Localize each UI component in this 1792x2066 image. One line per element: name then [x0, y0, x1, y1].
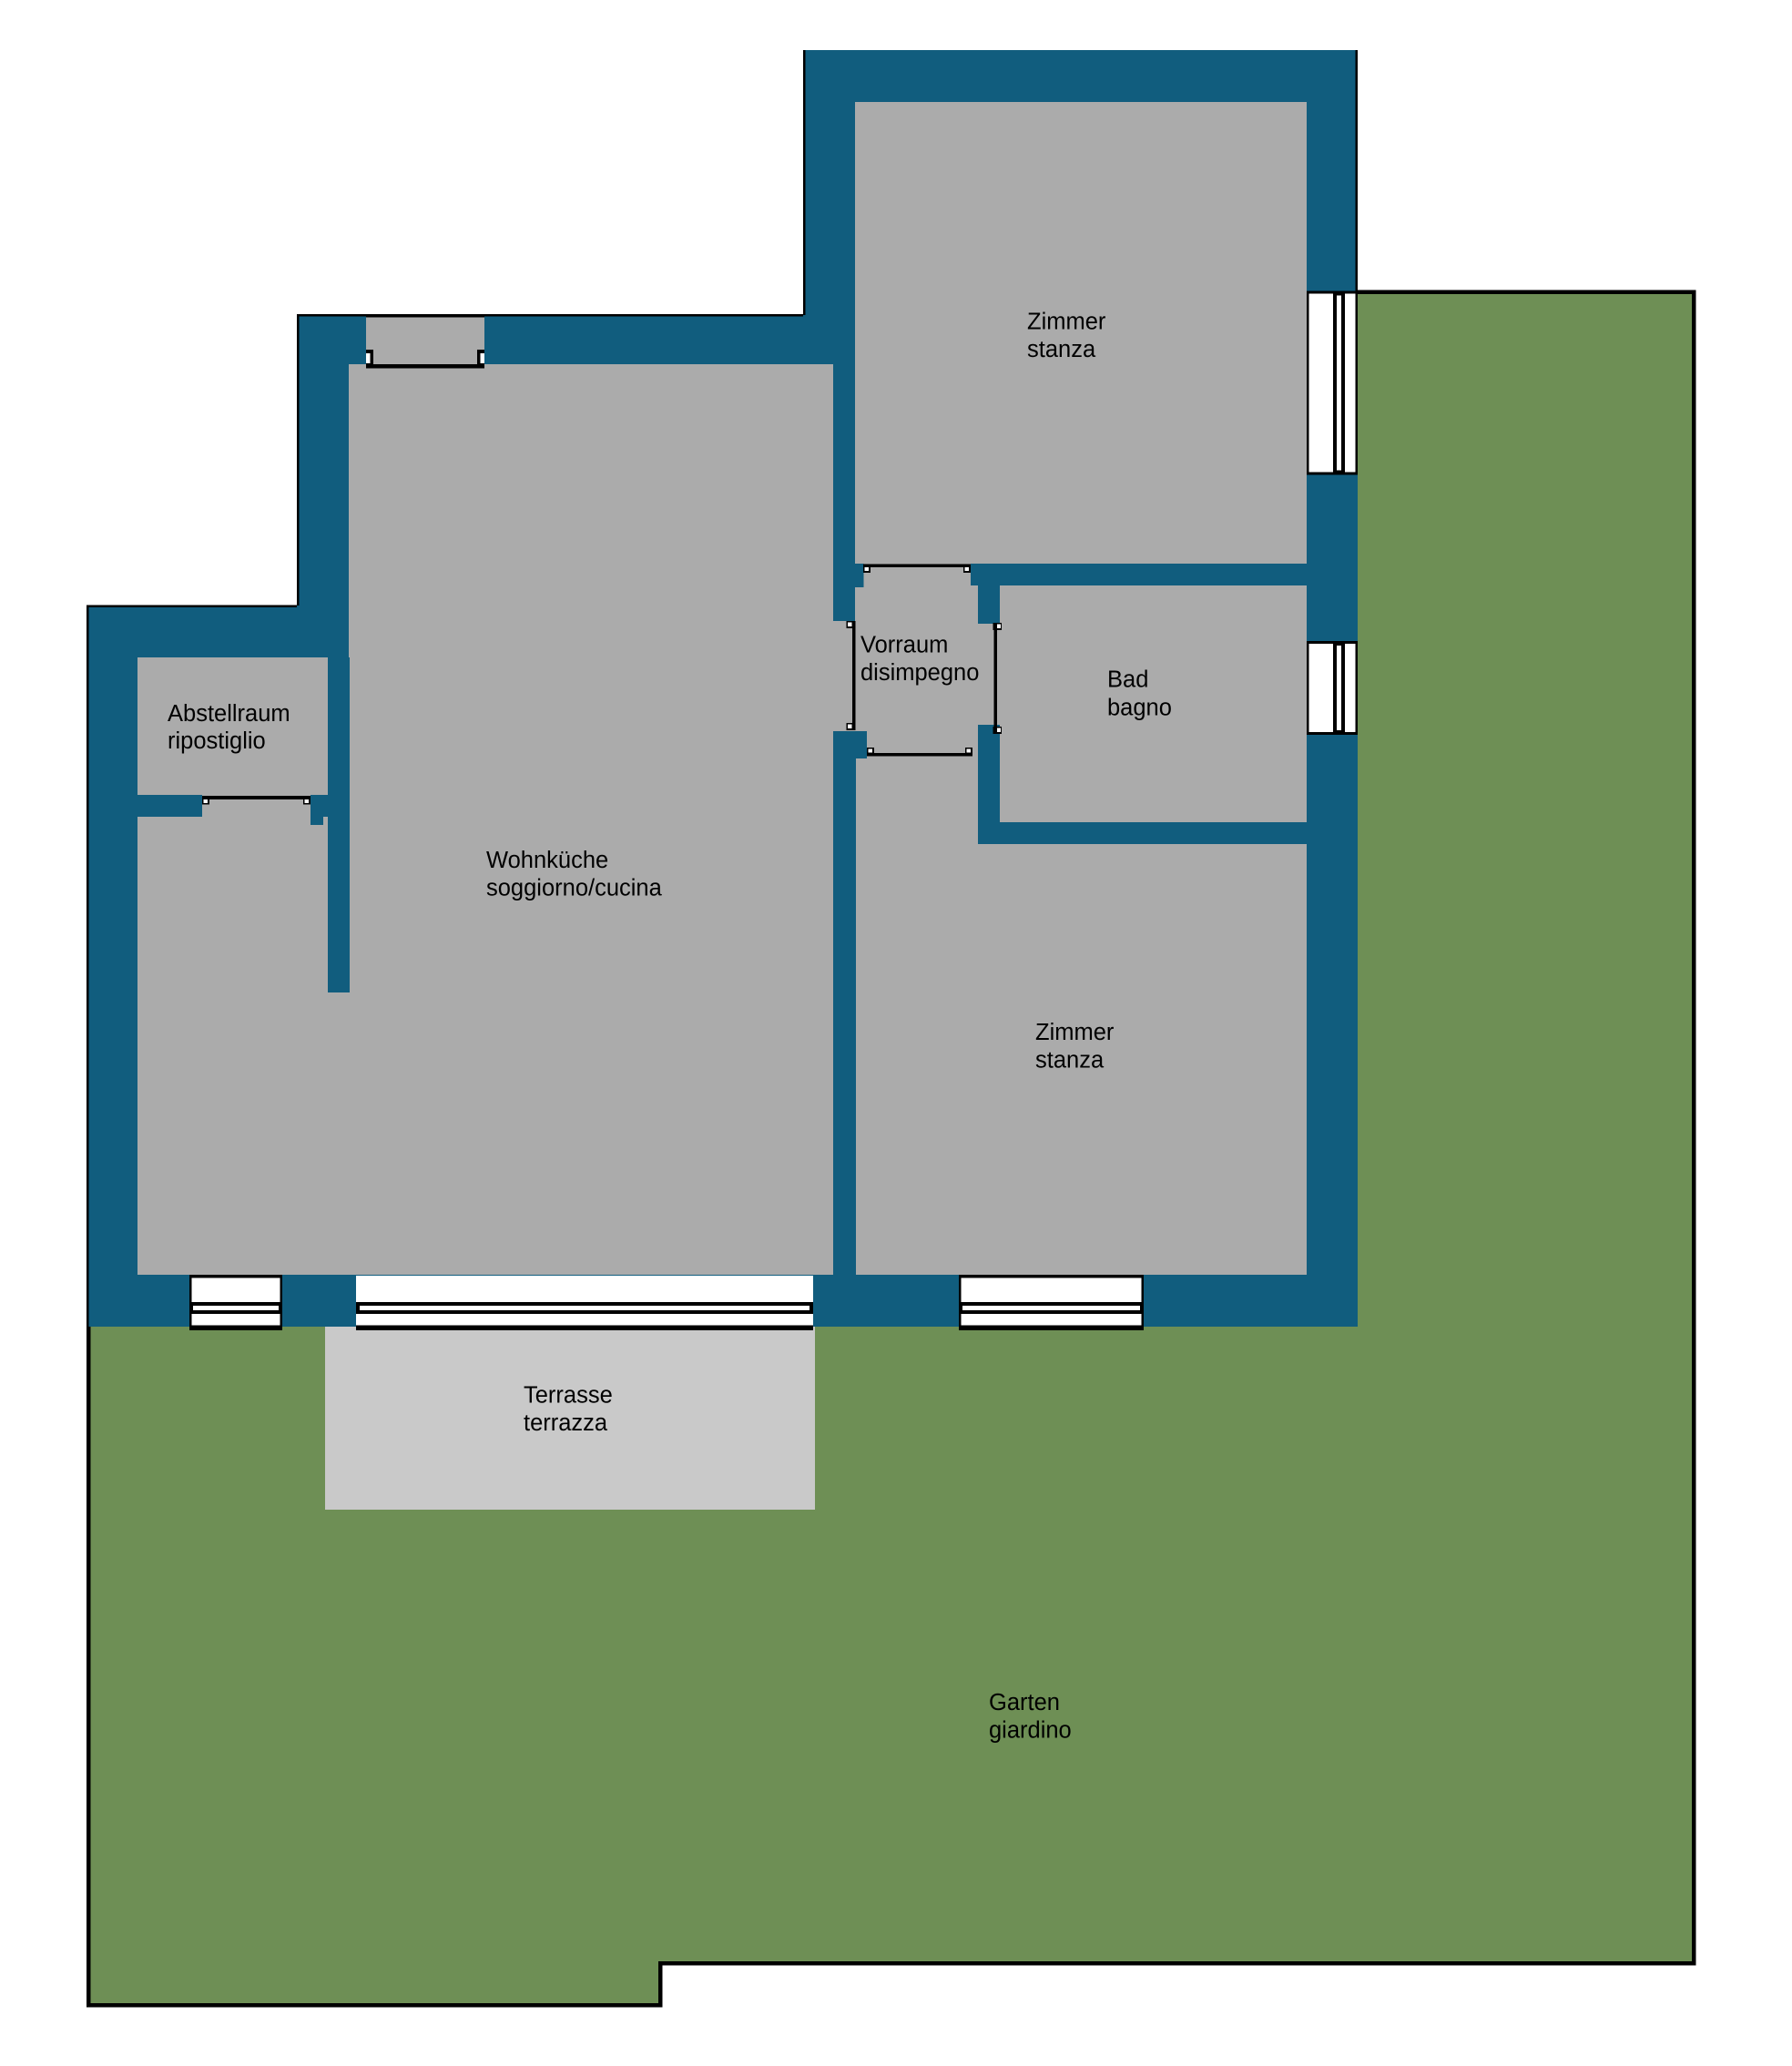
svg-text:bagno: bagno — [1107, 696, 1172, 721]
svg-text:Zimmer: Zimmer — [1027, 310, 1106, 335]
svg-text:Abstellraum: Abstellraum — [168, 701, 290, 727]
svg-text:stanza: stanza — [1027, 337, 1096, 362]
svg-text:Bad: Bad — [1107, 667, 1148, 693]
svg-text:terrazza: terrazza — [524, 1410, 608, 1436]
svg-text:Vorraum: Vorraum — [860, 633, 948, 658]
svg-text:Garten: Garten — [989, 1690, 1060, 1715]
svg-text:disimpegno: disimpegno — [860, 660, 979, 686]
svg-text:Zimmer: Zimmer — [1035, 1020, 1115, 1045]
svg-text:giardino: giardino — [989, 1718, 1072, 1744]
svg-text:Terrasse: Terrasse — [524, 1383, 613, 1409]
svg-text:ripostiglio: ripostiglio — [168, 728, 266, 754]
svg-text:stanza: stanza — [1035, 1048, 1105, 1074]
svg-text:Wohnküche: Wohnküche — [486, 848, 608, 873]
svg-text:soggiorno/cucina: soggiorno/cucina — [486, 876, 663, 901]
